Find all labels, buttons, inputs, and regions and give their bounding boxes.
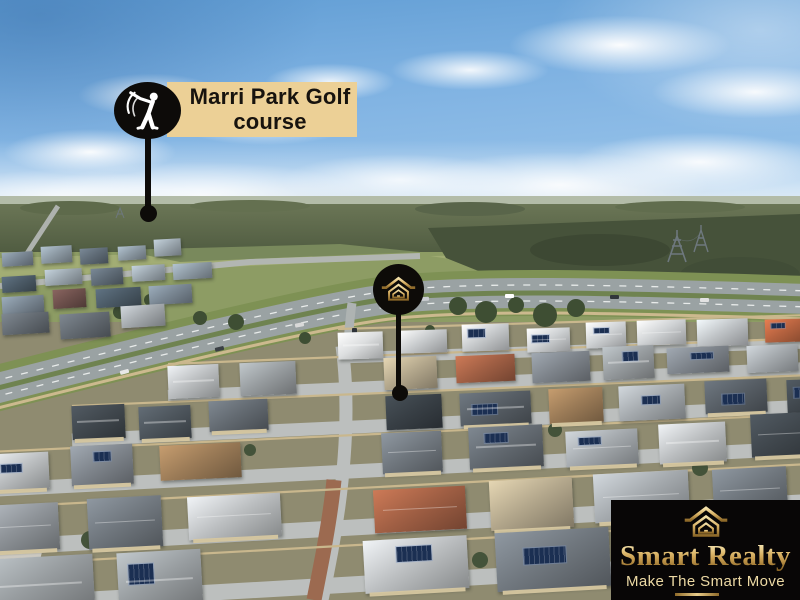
house-wall: [755, 454, 800, 461]
roof-ridge: [590, 334, 622, 336]
house-wall: [385, 471, 440, 478]
house-roof: [548, 387, 604, 424]
house-roof: [90, 267, 123, 285]
house-roof: [2, 275, 37, 293]
house-roof: [70, 444, 134, 487]
house-roof: [120, 304, 165, 328]
house-roof: [117, 549, 204, 600]
house-roof: [602, 344, 654, 379]
house-roof: [52, 288, 87, 309]
house-roof: [173, 262, 213, 281]
solar-panel: [468, 329, 485, 337]
house-roof: [381, 430, 443, 474]
solar-panel: [396, 545, 432, 562]
house-roof: [468, 425, 544, 470]
solar-panel: [623, 352, 638, 361]
roof-ridge: [721, 487, 780, 492]
house-roof: [565, 428, 639, 467]
house-roof: [0, 554, 95, 600]
house-roof: [636, 319, 686, 345]
roof-ridge: [96, 519, 156, 524]
roof-ridge: [383, 506, 457, 511]
roof-ridge: [758, 432, 800, 436]
solar-panel: [524, 547, 566, 565]
house-roof: [87, 495, 164, 550]
house-roof: [747, 343, 800, 373]
house-roof: [149, 284, 193, 306]
house-roof: [658, 421, 727, 464]
house-wall: [502, 586, 607, 596]
house-roof: [531, 351, 590, 383]
house-roof: [187, 493, 282, 540]
roof-ridge: [0, 525, 51, 530]
house-roof: [527, 328, 570, 353]
brand-tagline: Make The Smart Move: [626, 573, 785, 590]
house-roof: [462, 324, 509, 353]
house-roof: [60, 311, 111, 339]
aerial-photo: Marri Park Golf course Smart Realty Make…: [0, 0, 800, 600]
golf-marker-pin-dot: [140, 205, 157, 222]
house-roof: [488, 477, 573, 532]
solar-panel: [722, 394, 745, 405]
house-roof: [460, 391, 532, 427]
house-wall: [212, 428, 267, 434]
house-roof: [705, 379, 768, 415]
brand-house-icon: [677, 504, 735, 541]
house-roof: [667, 345, 730, 374]
roof-ridge: [77, 420, 119, 423]
property-marker-pin-line: [396, 312, 401, 389]
brand-underline: [675, 593, 719, 596]
house-icon: [380, 275, 417, 304]
house-roof: [71, 404, 125, 440]
roof-ridge: [642, 331, 681, 334]
house-roof: [494, 527, 611, 592]
house-wall: [0, 488, 47, 495]
house-roof: [383, 356, 438, 390]
golf-label-line1: Marri Park Golf: [190, 85, 351, 110]
house-roof: [750, 412, 800, 458]
roof-ridge: [145, 420, 187, 423]
roof-ridge: [603, 493, 679, 498]
house-wall: [0, 549, 57, 557]
house-roof: [45, 268, 83, 286]
house-roof: [2, 252, 33, 268]
house-roof: [117, 246, 146, 262]
roof-ridge: [477, 444, 536, 448]
golfer-icon: [125, 88, 171, 134]
house-roof: [139, 405, 193, 441]
house-roof: [456, 354, 516, 383]
house-wall: [663, 460, 725, 467]
roof-ridge: [388, 450, 436, 454]
house-wall: [552, 421, 602, 427]
house-roof: [240, 360, 298, 395]
house-roof: [397, 330, 446, 355]
house-wall: [370, 587, 466, 596]
house-roof: [363, 535, 470, 594]
house-roof: [208, 399, 268, 432]
house-roof: [41, 245, 73, 264]
house-wall: [142, 437, 190, 443]
brand-logo: Smart Realty Make The Smart Move: [611, 500, 800, 600]
house-roof: [619, 384, 686, 422]
roof-ridge: [0, 581, 82, 588]
house-wall: [193, 534, 278, 542]
house-roof: [1, 312, 49, 336]
roof-ridge: [198, 513, 272, 518]
house-roof: [159, 443, 241, 482]
roof-ridge: [173, 379, 214, 382]
golf-marker-label: Marri Park Golf course: [167, 82, 357, 137]
solar-panel: [93, 452, 110, 462]
roof-ridge: [573, 445, 631, 449]
house-roof: [585, 322, 626, 349]
golf-label-line2: course: [233, 110, 306, 135]
roof-ridge: [666, 440, 720, 444]
house-roof: [154, 238, 182, 257]
house-roof: [786, 377, 800, 412]
roof-ridge: [608, 360, 649, 363]
solar-panel: [485, 434, 508, 444]
house-wall: [74, 483, 131, 490]
brand-name: Smart Realty: [620, 542, 791, 571]
solar-panel: [794, 387, 800, 398]
solar-panel: [1, 464, 22, 473]
roof-ridge: [343, 343, 379, 346]
house-wall: [75, 437, 124, 443]
golf-marker-pin-line: [145, 136, 151, 208]
house-roof: [697, 318, 749, 347]
solar-panel: [690, 351, 713, 358]
solar-panel: [642, 396, 661, 405]
house-roof: [338, 331, 384, 359]
house-roof: [0, 502, 60, 553]
solar-panel: [578, 436, 600, 445]
house-roof: [0, 452, 50, 491]
house-roof: [132, 264, 166, 281]
solar-panel: [473, 404, 498, 415]
house-roof: [765, 318, 800, 342]
house-roof: [80, 247, 109, 265]
house-wall: [570, 463, 637, 470]
golf-marker-badge: [114, 82, 181, 139]
solar-panel: [771, 323, 784, 328]
property-marker-pin-dot: [392, 385, 408, 401]
house-roof: [167, 364, 219, 399]
house-roof: [373, 486, 467, 534]
house-wall: [473, 466, 541, 473]
property-marker-badge: [373, 264, 424, 315]
